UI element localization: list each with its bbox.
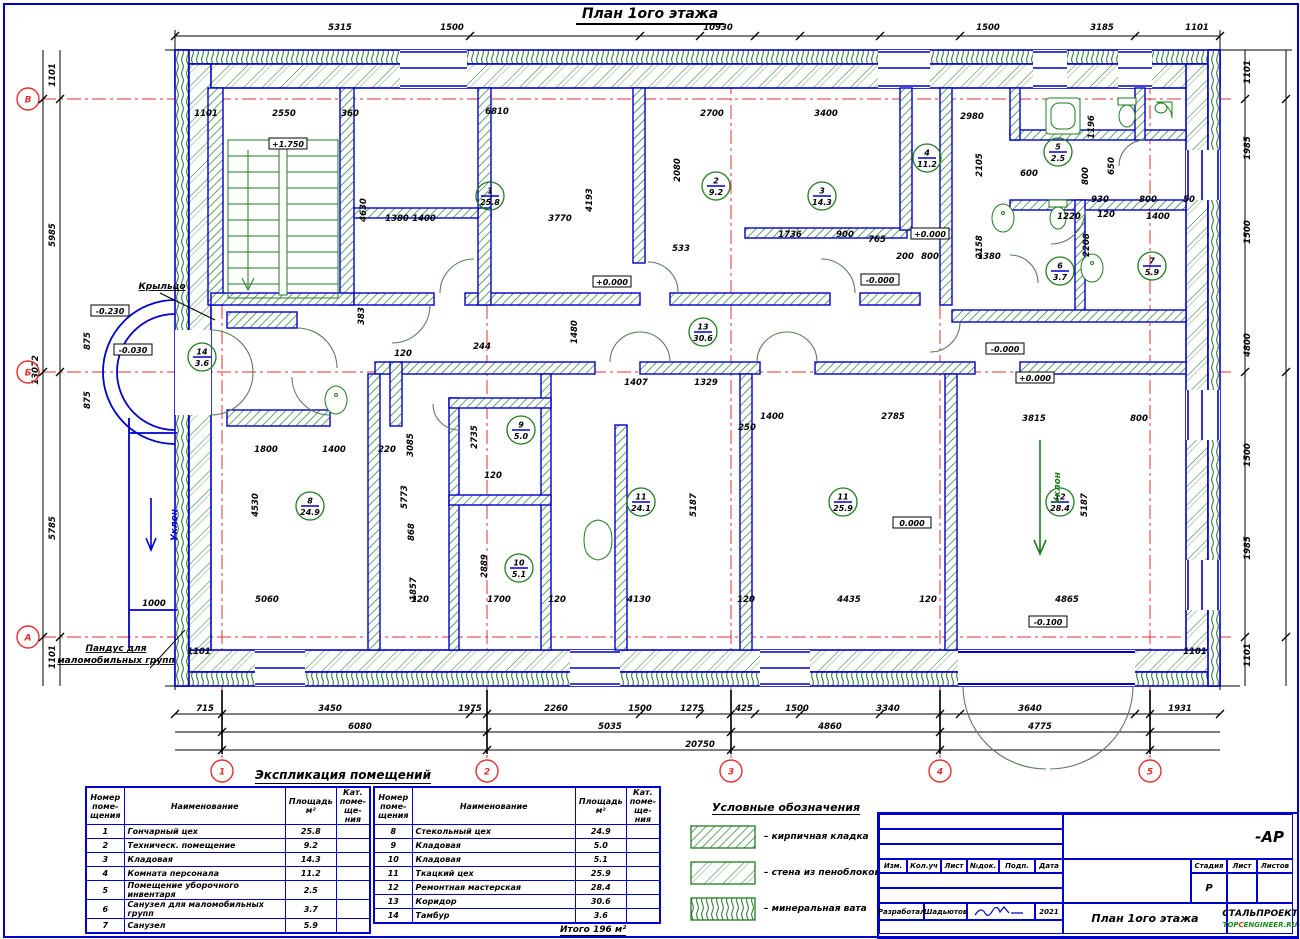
dimension-label: 360 bbox=[341, 109, 359, 119]
legend: Условные обозначения – кирпичная кладка … bbox=[690, 798, 890, 933]
legend-item: – минеральная вата bbox=[690, 897, 890, 921]
dimension-label: 1400 bbox=[760, 412, 784, 422]
dimension-label: 1800 bbox=[254, 445, 278, 455]
dimension-label: 2105 bbox=[975, 153, 985, 177]
dimension-label: 800 bbox=[1081, 167, 1091, 185]
dimension-label: 2208 bbox=[1082, 233, 1092, 257]
dimension-label: 425 bbox=[734, 704, 753, 714]
signature bbox=[971, 905, 1031, 919]
level-mark: -0.000 bbox=[991, 345, 1020, 354]
dimension-label: 1380 bbox=[977, 252, 1001, 262]
level-mark: -0.100 bbox=[1034, 618, 1063, 627]
explication-title: Экспликация помещений bbox=[255, 768, 431, 784]
dimension-label: 930 bbox=[1091, 195, 1109, 205]
dimension-label: 4530 bbox=[251, 493, 261, 518]
dimension-label: 800 bbox=[1139, 195, 1157, 205]
room-area: 11.2 bbox=[917, 160, 937, 169]
interior-walls bbox=[208, 88, 1186, 650]
rev-col-izm: Изм. bbox=[879, 859, 907, 873]
stage-label: Стадия bbox=[1191, 859, 1227, 873]
plan-note: Уклон bbox=[170, 509, 180, 541]
dimension-label: 1700 bbox=[487, 595, 511, 605]
shower bbox=[584, 520, 612, 560]
table-row: 9Кладовая5.0 bbox=[374, 839, 660, 853]
room-area: 25.9 bbox=[833, 504, 853, 513]
dimension-label: 50 bbox=[1183, 195, 1195, 205]
axis-label: 1 bbox=[219, 768, 225, 778]
dimension-label: 1220 bbox=[1057, 212, 1081, 222]
rev-col-data: Дата bbox=[1035, 859, 1063, 873]
explication-table-2: Номерпоме-щения Наименование Площадьм² К… bbox=[373, 786, 661, 924]
room-number: 11 bbox=[837, 493, 848, 502]
dimension-label: 1736 bbox=[778, 230, 802, 240]
dimension-label: 4193 bbox=[585, 188, 595, 213]
dimension-label: 875 bbox=[83, 391, 93, 409]
dimension-label: 383 bbox=[357, 307, 367, 325]
slope-arrow bbox=[1034, 440, 1046, 554]
dimension-label: 1101 bbox=[48, 63, 58, 87]
dimension-label: 650 bbox=[1107, 157, 1117, 175]
dimension-label: 1500 bbox=[1243, 443, 1253, 467]
stairs bbox=[228, 140, 338, 298]
dimension-label: 5060 bbox=[255, 595, 279, 605]
dimension-label: 120 bbox=[548, 595, 566, 605]
col-category: Кат.поме-ще-ния bbox=[626, 787, 660, 825]
dimension-label: 715 bbox=[196, 704, 214, 714]
dimension-label: 875 bbox=[83, 332, 93, 350]
plan-note: Уклон bbox=[1053, 472, 1063, 504]
dimension-label: 1101 bbox=[194, 109, 218, 119]
dimension-label: 1000 bbox=[142, 599, 166, 609]
legend-item-label: – кирпичная кладка bbox=[764, 832, 869, 842]
dimension-label: 20750 bbox=[685, 740, 715, 750]
dimension-label: 3400 bbox=[814, 109, 838, 119]
toilet bbox=[1118, 98, 1136, 127]
room-area: 14.3 bbox=[812, 198, 832, 207]
room-area: 30.6 bbox=[693, 334, 713, 343]
brick-swatch bbox=[690, 825, 756, 849]
rev-col-kol: Кол.уч bbox=[907, 859, 941, 873]
col-name: Наименование bbox=[124, 787, 285, 825]
dimension-label: 120 bbox=[1097, 210, 1115, 220]
room-number: 5 bbox=[1055, 143, 1061, 152]
room-number: 8 bbox=[307, 497, 313, 506]
dimension-label: 2080 bbox=[673, 158, 683, 182]
table-row: 1Гончарный цех25.8 bbox=[86, 825, 370, 839]
table-row: 8Стекольный цех24.9 bbox=[374, 825, 660, 839]
dimension-label: 120 bbox=[737, 595, 755, 605]
dimension-label: 5035 bbox=[598, 722, 622, 732]
table-row: 5Помещение уборочного инвентаря2.5 bbox=[86, 881, 370, 900]
dimension-label: 244 bbox=[473, 342, 491, 352]
axis-label: А bbox=[24, 634, 32, 644]
dimension-label: 5773 bbox=[400, 485, 410, 509]
dimension-label: 4775 bbox=[1027, 722, 1052, 732]
developed-label: Разработал bbox=[879, 903, 924, 920]
sink bbox=[325, 386, 347, 414]
room-area: 2.5 bbox=[1051, 154, 1066, 163]
room-number: 2 bbox=[713, 177, 719, 186]
explication-table-1: Номерпоме-щения Наименование Площадьм² К… bbox=[85, 786, 371, 934]
level-mark: -0.000 bbox=[866, 276, 895, 285]
dimension-label: 1500 bbox=[628, 704, 652, 714]
dimension-label: 2785 bbox=[881, 412, 905, 422]
dimension-label: 765 bbox=[868, 235, 886, 245]
plan-note: Крыльцо bbox=[138, 282, 185, 292]
dimension-label: 1329 bbox=[694, 378, 718, 388]
room-area: 24.9 bbox=[300, 508, 320, 517]
dimension-label: 1101 bbox=[187, 647, 211, 657]
legend-item: – стена из пеноблоков bbox=[690, 861, 890, 885]
dimension-label: 1196 bbox=[1087, 115, 1097, 139]
dimension-label: 800 bbox=[921, 252, 939, 262]
table-row: 10Кладовая5.1 bbox=[374, 853, 660, 867]
room-number: 1 bbox=[487, 187, 493, 196]
sink bbox=[1081, 254, 1103, 282]
dimension-label: 5187 bbox=[1080, 493, 1090, 517]
axis-label: Б bbox=[25, 369, 32, 379]
dimension-label: 200 bbox=[896, 252, 914, 262]
dimension-label: 600 bbox=[1020, 169, 1038, 179]
total-area: Итого 196 м² bbox=[560, 925, 626, 936]
dimension-label: 1931 bbox=[1168, 704, 1192, 714]
table-row: 3Кладовая14.3 bbox=[86, 853, 370, 867]
level-mark: +0.000 bbox=[1019, 374, 1051, 383]
level-mark: -0.030 bbox=[119, 346, 148, 355]
company-cell: СТАЛЬПРОЕКТ ТОРCENGINEER.RU bbox=[1227, 903, 1293, 934]
dimension-label: 4630 bbox=[359, 198, 369, 223]
col-area: Площадьм² bbox=[285, 787, 336, 825]
axis-label: 2 bbox=[484, 768, 490, 778]
dimension-label: 800 bbox=[1130, 414, 1148, 424]
room-area: 9.2 bbox=[709, 188, 724, 197]
legend-title: Условные обозначения bbox=[712, 801, 860, 815]
dimension-label: 1500 bbox=[1243, 220, 1253, 244]
dimension-label: 3085 bbox=[406, 433, 416, 457]
level-mark: -0.230 bbox=[96, 307, 125, 316]
dimension-label: 1380 bbox=[385, 214, 409, 224]
col-name: Наименование bbox=[412, 787, 575, 825]
room-number: 14 bbox=[196, 348, 208, 357]
dimension-label: 4435 bbox=[836, 595, 861, 605]
room-area: 5.0 bbox=[514, 432, 529, 441]
dimension-label: 4865 bbox=[1054, 595, 1079, 605]
topengineer-logo: ТОРCENGINEER.RU bbox=[1223, 921, 1298, 929]
corner-sink bbox=[1155, 102, 1172, 118]
dimension-label: 2980 bbox=[960, 112, 984, 122]
dimension-label: 3770 bbox=[548, 214, 572, 224]
plan-note: Пандус для bbox=[85, 644, 146, 654]
rev-col-podp: Подп. bbox=[999, 859, 1035, 873]
wool-swatch bbox=[690, 897, 756, 921]
dimension-label: 1407 bbox=[624, 378, 648, 388]
dimension-label: 1400 bbox=[1146, 212, 1170, 222]
dimension-label: 4800 bbox=[1243, 333, 1253, 358]
dimension-label: 1985 bbox=[1243, 136, 1253, 160]
dimension-label: 868 bbox=[407, 523, 417, 541]
dimension-label: 4860 bbox=[817, 722, 842, 732]
dimension-label: 2889 bbox=[480, 554, 490, 578]
dimension-label: 1101 bbox=[1243, 643, 1253, 667]
dimension-label: 533 bbox=[672, 244, 690, 254]
rev-col-list: Лист bbox=[941, 859, 967, 873]
level-mark: +1.750 bbox=[272, 140, 304, 149]
sheet-label: Лист bbox=[1227, 859, 1257, 873]
room-number: 10 bbox=[513, 559, 525, 568]
table-row: 2Техническ. помещение9.2 bbox=[86, 839, 370, 853]
dimension-label: 5785 bbox=[48, 516, 58, 540]
dimension-label: 2735 bbox=[470, 425, 480, 449]
dimension-label: 3450 bbox=[318, 704, 342, 714]
room-number: 11 bbox=[635, 493, 646, 502]
dimension-label: 5315 bbox=[328, 23, 352, 33]
dimension-label: 4130 bbox=[626, 595, 651, 605]
room-area: 5.9 bbox=[1145, 268, 1160, 277]
room-area: 3.7 bbox=[1053, 273, 1068, 282]
dimension-label: 2550 bbox=[272, 109, 296, 119]
dimension-label: 120 bbox=[394, 349, 412, 359]
axis-label: В bbox=[25, 96, 32, 106]
dimension-label: 250 bbox=[738, 423, 756, 433]
title-block: Изм. Кол.уч Лист №док. Подп. Дата Разраб… bbox=[877, 812, 1299, 939]
dimension-label: 900 bbox=[836, 230, 854, 240]
dimension-label: 3640 bbox=[1018, 704, 1042, 714]
table-row: 7Санузел5.9 bbox=[86, 919, 370, 934]
table-row: 6Санузел для маломобильных групп3.7 bbox=[86, 900, 370, 919]
dimension-label: 1480 bbox=[570, 320, 580, 344]
room-number: 3 bbox=[819, 187, 825, 196]
dimension-label: 220 bbox=[378, 445, 396, 455]
table-row: 11Ткацкий цех25.9 bbox=[374, 867, 660, 881]
dimension-label: 120 bbox=[484, 471, 502, 481]
legend-item-label: – минеральная вата bbox=[764, 904, 867, 914]
dimension-label: 1400 bbox=[322, 445, 346, 455]
developed-name: Шадьютов bbox=[924, 903, 967, 920]
col-area: Площадьм² bbox=[575, 787, 626, 825]
dimension-label: 10930 bbox=[703, 23, 733, 33]
dimension-label: 3815 bbox=[1022, 414, 1046, 424]
dimension-label: 6810 bbox=[485, 107, 509, 117]
dimension-label: 1275 bbox=[680, 704, 704, 714]
dimension-label: 1985 bbox=[1243, 536, 1253, 560]
room-number: 6 bbox=[1057, 262, 1063, 271]
document-code: -АР bbox=[1063, 814, 1293, 859]
dimension-label: 3185 bbox=[1090, 23, 1114, 33]
axis-label: 3 bbox=[728, 768, 734, 778]
dimension-label: 5187 bbox=[689, 493, 699, 517]
stage-value: Р bbox=[1191, 873, 1227, 903]
table-row: 12Ремонтная мастерская28.4 bbox=[374, 881, 660, 895]
room-number: 13 bbox=[697, 323, 709, 332]
dimension-label: 1975 bbox=[458, 704, 482, 714]
dimension-label: 1500 bbox=[440, 23, 464, 33]
room-area: 5.1 bbox=[512, 570, 526, 579]
level-mark: +0.000 bbox=[914, 230, 946, 239]
room-number: 4 bbox=[923, 149, 930, 158]
dimension-label: 120 bbox=[919, 595, 937, 605]
col-number: Номерпоме-щения bbox=[374, 787, 412, 825]
porch-arc-outer bbox=[103, 300, 175, 444]
date-cell: 2021 bbox=[1035, 903, 1063, 920]
col-category: Кат.поме-ще-ния bbox=[336, 787, 370, 825]
dimension-label: 1500 bbox=[785, 704, 809, 714]
room-area: 24.1 bbox=[631, 504, 651, 513]
table-row: 13Коридор30.6 bbox=[374, 895, 660, 909]
dimension-label: 120 bbox=[411, 595, 429, 605]
legend-item: – кирпичная кладка bbox=[690, 825, 890, 849]
room-area: 28.4 bbox=[1050, 504, 1070, 513]
dimension-label: 1400 bbox=[412, 214, 436, 224]
room-area: 25.8 bbox=[480, 198, 500, 207]
dimension-label: 2700 bbox=[700, 109, 724, 119]
room-number: 9 bbox=[518, 421, 524, 430]
rev-col-doc: №док. bbox=[967, 859, 999, 873]
foam-swatch bbox=[690, 861, 756, 885]
dimension-label: 6080 bbox=[348, 722, 372, 732]
signature-cell bbox=[967, 903, 1035, 920]
dimension-label: 1101 bbox=[1185, 23, 1209, 33]
dimension-label: 3340 bbox=[876, 704, 900, 714]
dimension-label: 2260 bbox=[544, 704, 568, 714]
sheets-label: Листов bbox=[1257, 859, 1293, 873]
sink bbox=[992, 204, 1014, 232]
col-number: Номерпоме-щения bbox=[86, 787, 124, 825]
legend-item-label: – стена из пеноблоков bbox=[764, 868, 880, 878]
company-name: СТАЛЬПРОЕКТ bbox=[1222, 909, 1297, 919]
dimension-label: 5985 bbox=[48, 223, 58, 247]
dimension-label: 1500 bbox=[976, 23, 1000, 33]
table-row: 14Тамбур3.6 bbox=[374, 909, 660, 924]
drawing-sheet: План 1ого этажа bbox=[0, 0, 1300, 939]
dimension-label: 1101 bbox=[1183, 647, 1207, 657]
room-number: 7 bbox=[1149, 257, 1155, 266]
table-row: 4Комната персонала11.2 bbox=[86, 867, 370, 881]
level-mark: 0.000 bbox=[899, 519, 925, 528]
dimension-label: 1101 bbox=[1243, 60, 1253, 84]
axis-label: 4 bbox=[936, 768, 943, 778]
axis-label: 5 bbox=[1147, 768, 1153, 778]
level-mark: +0.000 bbox=[596, 278, 628, 287]
drawing-name: План 1ого этажа bbox=[1063, 903, 1227, 934]
room-area: 3.6 bbox=[195, 359, 210, 368]
